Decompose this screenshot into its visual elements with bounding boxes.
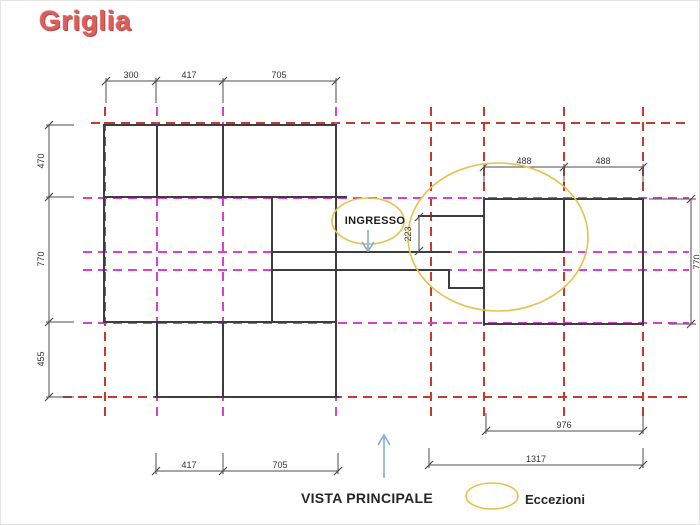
dimension-ticks: [45, 77, 695, 475]
dim-right-side-label: 770: [692, 254, 700, 269]
grid-red-vertical-lines: [105, 107, 643, 419]
vista-principale-arrow: [378, 435, 390, 478]
ingresso-arrow: [362, 230, 374, 251]
dim-top-2-label: 417: [181, 70, 196, 80]
dim-left-3-label: 455: [36, 351, 46, 366]
exceptions-ellipse: [408, 163, 588, 311]
eccezioni-legend-label: Eccezioni: [525, 492, 585, 507]
grid-magenta-vertical-lines: [157, 107, 336, 419]
dim-left-1-label: 470: [36, 153, 46, 168]
ingresso-label: INGRESSO: [345, 215, 406, 227]
legend-exceptions-ellipse: [466, 483, 518, 509]
dim-top-1-label: 300: [123, 70, 138, 80]
dim-left-2-label: 770: [36, 251, 46, 266]
slide: Griglia: [0, 0, 700, 525]
dim-top-3-label: 705: [271, 70, 286, 80]
dim-bottom-left-1-label: 417: [181, 460, 196, 470]
dim-bottom-right-inner-label: 976: [556, 420, 571, 430]
dimension-lines: [46, 78, 696, 474]
dim-right-top-1-label: 488: [516, 156, 531, 166]
dim-bottom-right-outer-label: 1317: [526, 454, 546, 464]
floor-plan-walls: [104, 125, 643, 397]
dim-entrance-label: 223: [403, 226, 413, 241]
vista-principale-label: VISTA PRINCIPALE: [301, 490, 433, 506]
grid-drawing: 300 417 705 470 770 455 488 488 770 223 …: [1, 1, 700, 525]
dim-bottom-left-2-label: 705: [272, 460, 287, 470]
dim-right-top-2-label: 488: [595, 156, 610, 166]
